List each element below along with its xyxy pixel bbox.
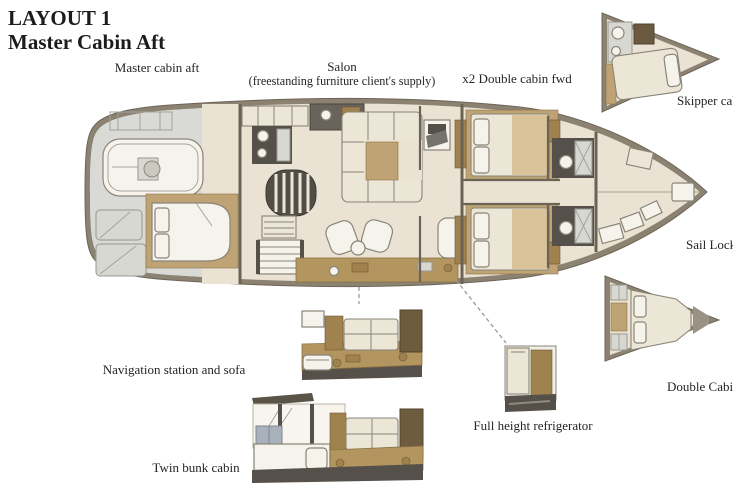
stool xyxy=(402,457,410,465)
bow-step xyxy=(693,306,709,334)
chart-table xyxy=(303,355,332,370)
sofa xyxy=(344,319,398,350)
pillow xyxy=(306,448,327,469)
label-double-cabin-fwd: x2 Double cabin fwd xyxy=(462,72,571,86)
galley-sink xyxy=(321,110,331,120)
label-salon: Salon (freestanding furniture client's s… xyxy=(249,60,436,88)
twin-bunk-inset xyxy=(252,393,423,483)
pillow xyxy=(474,119,489,145)
nav-cabinet xyxy=(302,311,324,327)
label-full-height-refrigerator: Full height refrigerator xyxy=(473,419,592,433)
label-sail-locker: Sail Locker xyxy=(686,238,733,252)
tall-cabinet xyxy=(325,316,343,350)
skipper-cabinet xyxy=(634,24,654,44)
tender-dinghy xyxy=(103,139,203,196)
pillow xyxy=(155,208,169,232)
layout-name: Master Cabin Aft xyxy=(8,30,165,54)
yacht-layout-sheet: LAYOUT 1 Master Cabin Aft Master cabin a… xyxy=(0,0,733,489)
fridge-leader xyxy=(456,280,506,343)
pillow xyxy=(474,147,489,173)
salon-table xyxy=(366,142,398,180)
fridge-door-left xyxy=(507,348,529,394)
cabin-cabinet xyxy=(611,303,627,331)
stool xyxy=(333,359,341,367)
label-skipper-cabin: Skipper cabin xyxy=(677,94,733,108)
galley-sink xyxy=(330,267,339,276)
label-navigation-station: Navigation station and sofa xyxy=(103,363,246,377)
tv-cabinet xyxy=(424,120,450,150)
nav-station-inset xyxy=(302,310,422,380)
layout-number: LAYOUT 1 xyxy=(8,6,165,30)
sofa xyxy=(346,418,398,450)
pillow xyxy=(634,296,646,317)
pillow xyxy=(474,241,489,267)
label-master-cabin-aft: Master cabin aft xyxy=(115,61,199,75)
fridge-door-right xyxy=(531,350,552,396)
wardrobe xyxy=(242,106,308,126)
double-cabin-plan xyxy=(605,276,719,361)
galley-counter-bottom xyxy=(296,258,458,282)
stool xyxy=(336,459,344,467)
aft-head-bathroom xyxy=(252,126,292,164)
label-double-cabin: Double Cabin xyxy=(667,380,733,394)
sheet-title: LAYOUT 1 Master Cabin Aft xyxy=(8,6,165,54)
tall-locker xyxy=(400,310,422,352)
pillow xyxy=(474,213,489,239)
side-table xyxy=(351,241,365,255)
toilet xyxy=(560,222,573,235)
pillow xyxy=(155,234,169,258)
toilet xyxy=(560,156,573,169)
anchor-locker xyxy=(672,183,694,201)
main-yacht-plan xyxy=(85,98,707,286)
label-twin-bunk-cabin: Twin bunk cabin xyxy=(152,461,239,475)
pillow xyxy=(634,322,646,343)
stool xyxy=(399,353,407,361)
refrigerator-inset xyxy=(505,346,556,412)
